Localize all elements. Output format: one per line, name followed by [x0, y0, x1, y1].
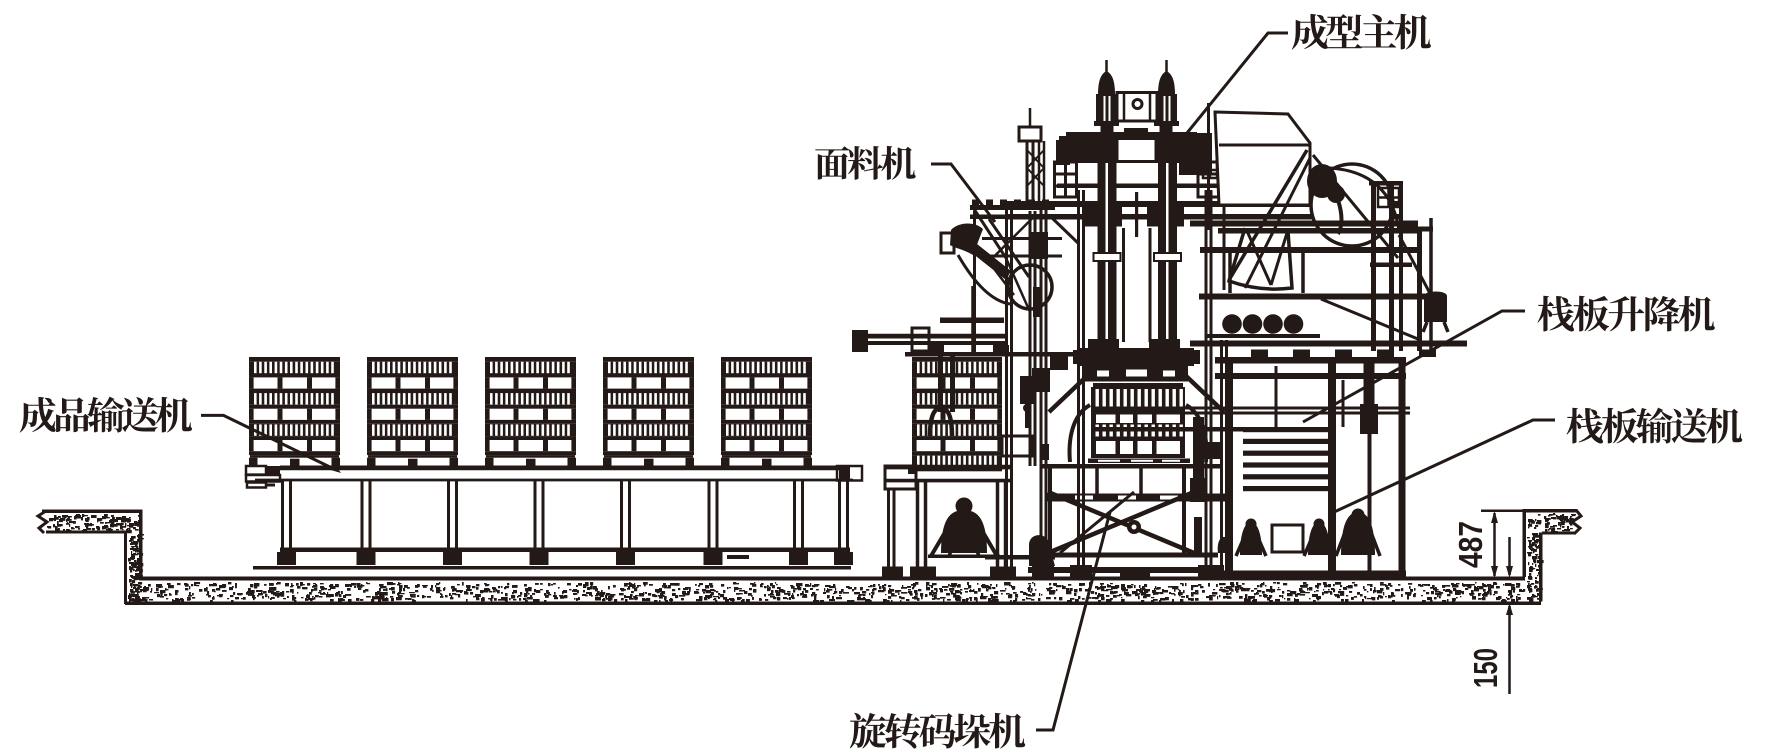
svg-text:150: 150: [1467, 648, 1504, 688]
svg-text:487: 487: [1452, 521, 1489, 568]
